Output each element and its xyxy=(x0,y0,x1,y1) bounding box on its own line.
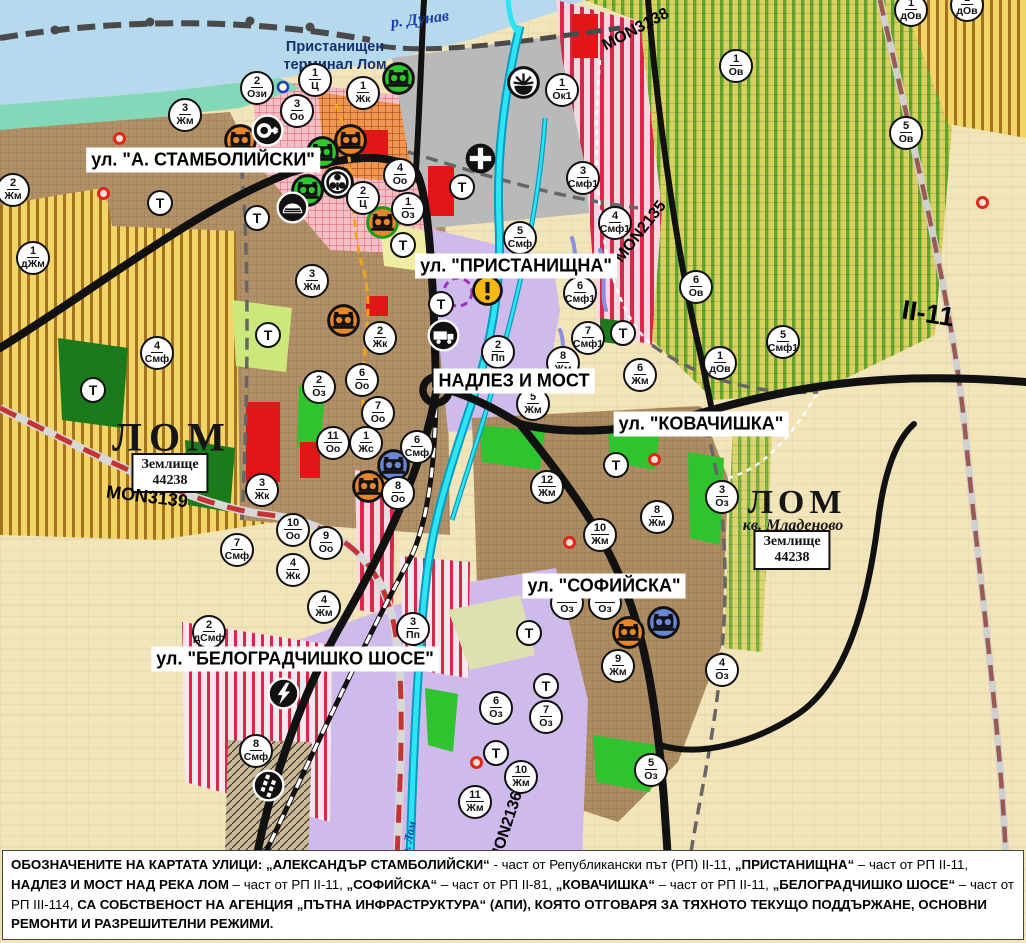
zone-code: Смф xyxy=(405,447,429,459)
zone-code: дСмф xyxy=(193,632,224,644)
zone-code: Оз xyxy=(644,770,657,782)
transport-marker: Т xyxy=(80,377,106,403)
street-label: ул. "СОФИЙСКА" xyxy=(522,574,685,599)
zone-marker: 4Оз xyxy=(705,653,739,687)
zone-number: 7 xyxy=(372,401,384,413)
legend-text-segment: – част от РП II-11, xyxy=(655,877,773,892)
red-dot xyxy=(470,756,483,769)
zone-number: 12 xyxy=(538,475,556,487)
zone-marker: 10Жм xyxy=(504,760,538,794)
zone-code: Жк xyxy=(373,338,388,350)
zone-code: Жм xyxy=(524,404,541,416)
zone-marker: 1Ок1 xyxy=(545,73,579,107)
zone-code: Жм xyxy=(609,666,626,678)
street-label: ул. "БЕЛОГРАДЧИШКО ШОСЕ" xyxy=(151,647,439,672)
zone-marker: 7Оз xyxy=(529,700,563,734)
red-dot xyxy=(97,187,110,200)
zone-code: Жм xyxy=(538,487,555,499)
zone-marker: 7Смф1 xyxy=(571,321,605,355)
transport-marker: Т xyxy=(147,190,173,216)
zone-number: 4 xyxy=(287,558,299,570)
zone-marker: 1Жк xyxy=(346,76,380,110)
zone-code: Оз xyxy=(715,497,728,509)
railcross-icon xyxy=(252,769,285,802)
street-label: ул. "ПРИСТАНИЩНА" xyxy=(415,254,617,279)
zone-marker: 5Смф1 xyxy=(766,325,800,359)
monument-orange xyxy=(612,616,645,649)
zone-number: 4 xyxy=(609,211,621,223)
zone-number: 2 xyxy=(7,178,19,190)
zone-code: Ов xyxy=(899,133,914,145)
zone-marker: 1дОв xyxy=(703,346,737,380)
zone-code: Жм xyxy=(303,281,320,293)
zone-code: Жк xyxy=(255,490,270,502)
zone-marker: 2дСмф xyxy=(192,615,226,649)
street-label: ул. "А. СТАМБОЛИЙСКИ" xyxy=(86,148,320,173)
zone-number: 4 xyxy=(716,658,728,670)
zone-marker: 7Смф xyxy=(220,533,254,567)
zone-marker: 1Оз xyxy=(391,192,425,226)
key-icon xyxy=(251,114,284,147)
blue-ring xyxy=(276,80,290,94)
zone-marker: 3Жм xyxy=(168,98,202,132)
zone-number: 6 xyxy=(634,363,646,375)
zone-number: 1 xyxy=(556,78,568,90)
zone-code: Оо xyxy=(371,413,386,425)
zone-number: 6 xyxy=(490,696,502,708)
zone-number: 7 xyxy=(540,705,552,717)
zone-marker: 9Оо xyxy=(309,526,343,560)
zone-marker: 2Ози xyxy=(240,71,274,105)
zone-number: 11 xyxy=(466,790,484,802)
zone-code: Оо xyxy=(326,443,341,455)
zone-code: Пп xyxy=(491,352,505,364)
zone-number: 8 xyxy=(392,481,404,493)
zone-number: 11 xyxy=(324,431,342,443)
zone-marker: 2Пп xyxy=(481,335,515,369)
zone-code: Жм xyxy=(315,607,332,619)
zone-code: Смф1 xyxy=(573,338,603,350)
zone-code: Ок1 xyxy=(552,90,571,102)
zone-code: Жк xyxy=(286,570,301,582)
zone-marker: 5Смф xyxy=(503,221,537,255)
zone-number: 9 xyxy=(612,654,624,666)
transport-marker: Т xyxy=(255,322,281,348)
zone-number: 3 xyxy=(291,99,303,111)
terminal-label: Пристанищен xyxy=(286,39,384,55)
zone-marker: 4Смф xyxy=(140,336,174,370)
zone-code: дОв xyxy=(900,10,921,22)
transport-marker: Т xyxy=(428,291,454,317)
legend-text-segment: – част от РП II-81, xyxy=(437,877,556,892)
zone-code: дОв xyxy=(709,363,730,375)
legend-text-segment: „БЕЛОГРАДЧИШКО ШОСЕ“ xyxy=(773,877,956,892)
zone-code: Оо xyxy=(319,543,334,555)
zone-code: Оз xyxy=(560,603,573,615)
zone-number: 1 xyxy=(360,431,372,443)
transport-marker: Т xyxy=(449,174,475,200)
zone-number: 7 xyxy=(582,326,594,338)
zone-code: Смф xyxy=(145,353,169,365)
zone-marker: 4Жм xyxy=(307,590,341,624)
zone-code: Жм xyxy=(631,375,648,387)
zone-marker: 10Оо xyxy=(276,513,310,547)
monument-green xyxy=(382,62,415,95)
legend-text-segment: „СОФИЙСКА“ xyxy=(346,877,437,892)
zone-code: Оз xyxy=(598,603,611,615)
zone-code: Ози xyxy=(247,88,267,100)
zone-marker: 6Смф1 xyxy=(563,276,597,310)
zone-code: Жм xyxy=(4,190,21,202)
zone-number: 2 xyxy=(203,620,215,632)
zone-number: 6 xyxy=(411,435,423,447)
zone-code: Пп xyxy=(406,629,420,641)
street-label: ул. "КОВАЧИШКА" xyxy=(614,412,789,437)
land-parcel-title: Землище xyxy=(141,457,198,473)
zone-number: 1 xyxy=(357,81,369,93)
cross-icon xyxy=(464,142,497,175)
zone-number: 5 xyxy=(527,392,539,404)
zone-number: 4 xyxy=(151,341,163,353)
zone-code: Смф1 xyxy=(568,178,598,190)
zone-code: Жс xyxy=(358,443,373,455)
zone-number: 2 xyxy=(492,340,504,352)
zone-code: Смф xyxy=(225,550,249,562)
zone-number: 3 xyxy=(306,269,318,281)
monument-blue xyxy=(647,606,680,639)
zone-number: 10 xyxy=(284,518,302,530)
zone-marker: 1Ц xyxy=(298,63,332,97)
zone-number: 8 xyxy=(250,739,262,751)
sun-dock-icon xyxy=(507,66,540,99)
street-label: НАДЛЕЗ И МОСТ xyxy=(434,369,595,394)
zone-code: Жм xyxy=(648,517,665,529)
zone-marker: 8Жм xyxy=(640,500,674,534)
zone-code: Оо xyxy=(391,493,406,505)
zone-number: 3 xyxy=(179,103,191,115)
zone-marker: 3Пп xyxy=(396,612,430,646)
zone-number: 10 xyxy=(512,765,530,777)
red-dot xyxy=(563,536,576,549)
legend-text-segment: НАДЛЕЗ И МОСТ НАД РЕКА ЛОМ xyxy=(11,877,229,892)
zone-marker: 5Оз xyxy=(634,753,668,787)
zone-marker: 6Оз xyxy=(479,691,513,725)
zone-marker: 8Смф xyxy=(239,734,273,768)
zone-number: 1 xyxy=(730,54,742,66)
zone-code: Ов xyxy=(729,66,744,78)
zone-marker: 4Смф1 xyxy=(598,206,632,240)
zone-code: Оо xyxy=(355,380,370,392)
zone-code: дЖм xyxy=(21,258,45,270)
land-parcel-number: 44238 xyxy=(763,550,820,566)
zone-marker: 11Оо xyxy=(316,426,350,460)
zone-marker: 3Жм xyxy=(295,264,329,298)
power-icon xyxy=(267,677,300,710)
zone-marker: 6Оо xyxy=(345,363,379,397)
zone-marker: 6Смф xyxy=(400,430,434,464)
zone-code: Смф1 xyxy=(768,342,798,354)
zone-code: Оо xyxy=(393,175,408,187)
red-dot xyxy=(976,196,989,209)
transport-marker: Т xyxy=(603,452,629,478)
zone-code: Смф1 xyxy=(600,223,630,235)
zone-code: Смф xyxy=(508,238,532,250)
legend-text-segment: ОБОЗНАЧЕНИТЕ НА КАРТАТА УЛИЦИ: „АЛЕКСАНД… xyxy=(11,857,490,872)
zone-number: 8 xyxy=(557,351,569,363)
zone-number: 5 xyxy=(514,226,526,238)
zone-number: 2 xyxy=(374,326,386,338)
zone-code: Жм xyxy=(466,802,483,814)
zone-marker: 1Жс xyxy=(349,426,383,460)
zone-number: 1 xyxy=(905,0,917,10)
zone-code: Ов xyxy=(689,287,704,299)
zone-marker: 11Жм xyxy=(458,785,492,819)
zone-marker: 2Оз xyxy=(302,370,336,404)
zone-marker: 6Ов xyxy=(679,270,713,304)
zone-number: 2 xyxy=(313,375,325,387)
zone-number: 3 xyxy=(716,485,728,497)
red-dot xyxy=(113,132,126,145)
zone-number: 3 xyxy=(256,478,268,490)
zone-marker: 2Жк xyxy=(363,321,397,355)
zone-number: 6 xyxy=(690,275,702,287)
transport-marker: Т xyxy=(483,740,509,766)
zone-marker: 4Жк xyxy=(276,553,310,587)
zone-number: 1 xyxy=(402,197,414,209)
zone-marker: 1дЖм xyxy=(16,241,50,275)
zone-number: 5 xyxy=(645,758,657,770)
zone-code: Оз xyxy=(539,717,552,729)
legend-text-segment: „ПРИСТАНИЩНА“ xyxy=(735,857,854,872)
legend-text-segment: - част от Републикански път (РП) II-11, xyxy=(490,857,735,872)
zone-number: 5 xyxy=(777,330,789,342)
zone-marker: 3Жк xyxy=(245,473,279,507)
transport-marker: Т xyxy=(533,673,559,699)
zone-number: 1 xyxy=(309,68,321,80)
zone-code: Жм xyxy=(591,535,608,547)
land-parcel-title: Землище xyxy=(763,534,820,550)
zoning-map: 2Ози1Ц1Жк3Оо3Жм2Жм1дЖм4Оо2Ц1Оз3Жм4Смф1Ок… xyxy=(0,0,1026,943)
zone-marker: 5Ов xyxy=(889,116,923,150)
zone-marker: 8Оо xyxy=(381,476,415,510)
zone-number: 5 xyxy=(900,121,912,133)
zone-code: Ц xyxy=(311,80,319,92)
legend-text-segment: – част от РП II-11, xyxy=(229,877,347,892)
zone-marker: 3Оз xyxy=(705,480,739,514)
truck-icon xyxy=(427,319,460,352)
zone-code: Жк xyxy=(356,93,371,105)
monument-orange xyxy=(327,304,360,337)
zone-marker: 7Оо xyxy=(361,396,395,430)
zone-code: Смф1 xyxy=(565,293,595,305)
zone-number: 1 xyxy=(714,351,726,363)
zone-code: Оо xyxy=(286,530,301,542)
terminal-label: терминал Лом xyxy=(283,57,386,73)
transport-marker: Т xyxy=(244,205,270,231)
zone-marker: 3Оо xyxy=(280,94,314,128)
transport-marker: Т xyxy=(390,232,416,258)
zone-code: Жм xyxy=(176,115,193,127)
zone-number: 10 xyxy=(591,523,609,535)
transport-marker: Т xyxy=(610,320,636,346)
zone-number: 6 xyxy=(356,368,368,380)
legend-text-segment: СА СОБСТВЕНОСТ НА АГЕНЦИЯ „ПЪТНА ИНФРАСТ… xyxy=(11,897,987,932)
zone-code: Оз xyxy=(312,387,325,399)
zone-code: Жм xyxy=(512,777,529,789)
zone-number: 4 xyxy=(394,163,406,175)
zone-code: Смф xyxy=(244,751,268,763)
legend-text-segment: – част от РП II-11, xyxy=(854,857,968,872)
zone-marker: 3Смф1 xyxy=(566,161,600,195)
zone-marker: 1Ов xyxy=(719,49,753,83)
zone-number: 3 xyxy=(577,166,589,178)
zone-code: Оз xyxy=(401,209,414,221)
red-dot xyxy=(648,453,661,466)
zone-number: 2 xyxy=(251,76,263,88)
zone-number: 2 xyxy=(357,186,369,198)
zone-code: Ц xyxy=(359,198,367,210)
zone-marker: 9Жм xyxy=(601,649,635,683)
zone-code: Оз xyxy=(489,708,502,720)
zone-number: 9 xyxy=(320,531,332,543)
zone-number: 8 xyxy=(651,505,663,517)
zone-code: дОв xyxy=(956,5,977,17)
zone-marker: 2Ц xyxy=(346,181,380,215)
mound-icon xyxy=(276,191,309,224)
transport-marker: Т xyxy=(516,620,542,646)
legend-note: ОБОЗНАЧЕНИТЕ НА КАРТАТА УЛИЦИ: „АЛЕКСАНД… xyxy=(2,850,1024,940)
zone-number: 6 xyxy=(574,281,586,293)
legend-text-segment: „КОВАЧИШКА“ xyxy=(556,877,655,892)
zone-number: 1 xyxy=(27,246,39,258)
zone-marker: 6Жм xyxy=(623,358,657,392)
land-parcel-box: Землище44238 xyxy=(753,530,830,570)
zone-number: 7 xyxy=(231,538,243,550)
zone-marker: 10Жм xyxy=(583,518,617,552)
zone-number: 4 xyxy=(318,595,330,607)
zone-code: Оз xyxy=(715,670,728,682)
zone-number: 3 xyxy=(407,617,419,629)
zone-marker: 4Оо xyxy=(383,158,417,192)
zone-marker: 12Жм xyxy=(530,470,564,504)
warning-icon xyxy=(472,275,503,306)
zone-code: Оо xyxy=(290,111,305,123)
